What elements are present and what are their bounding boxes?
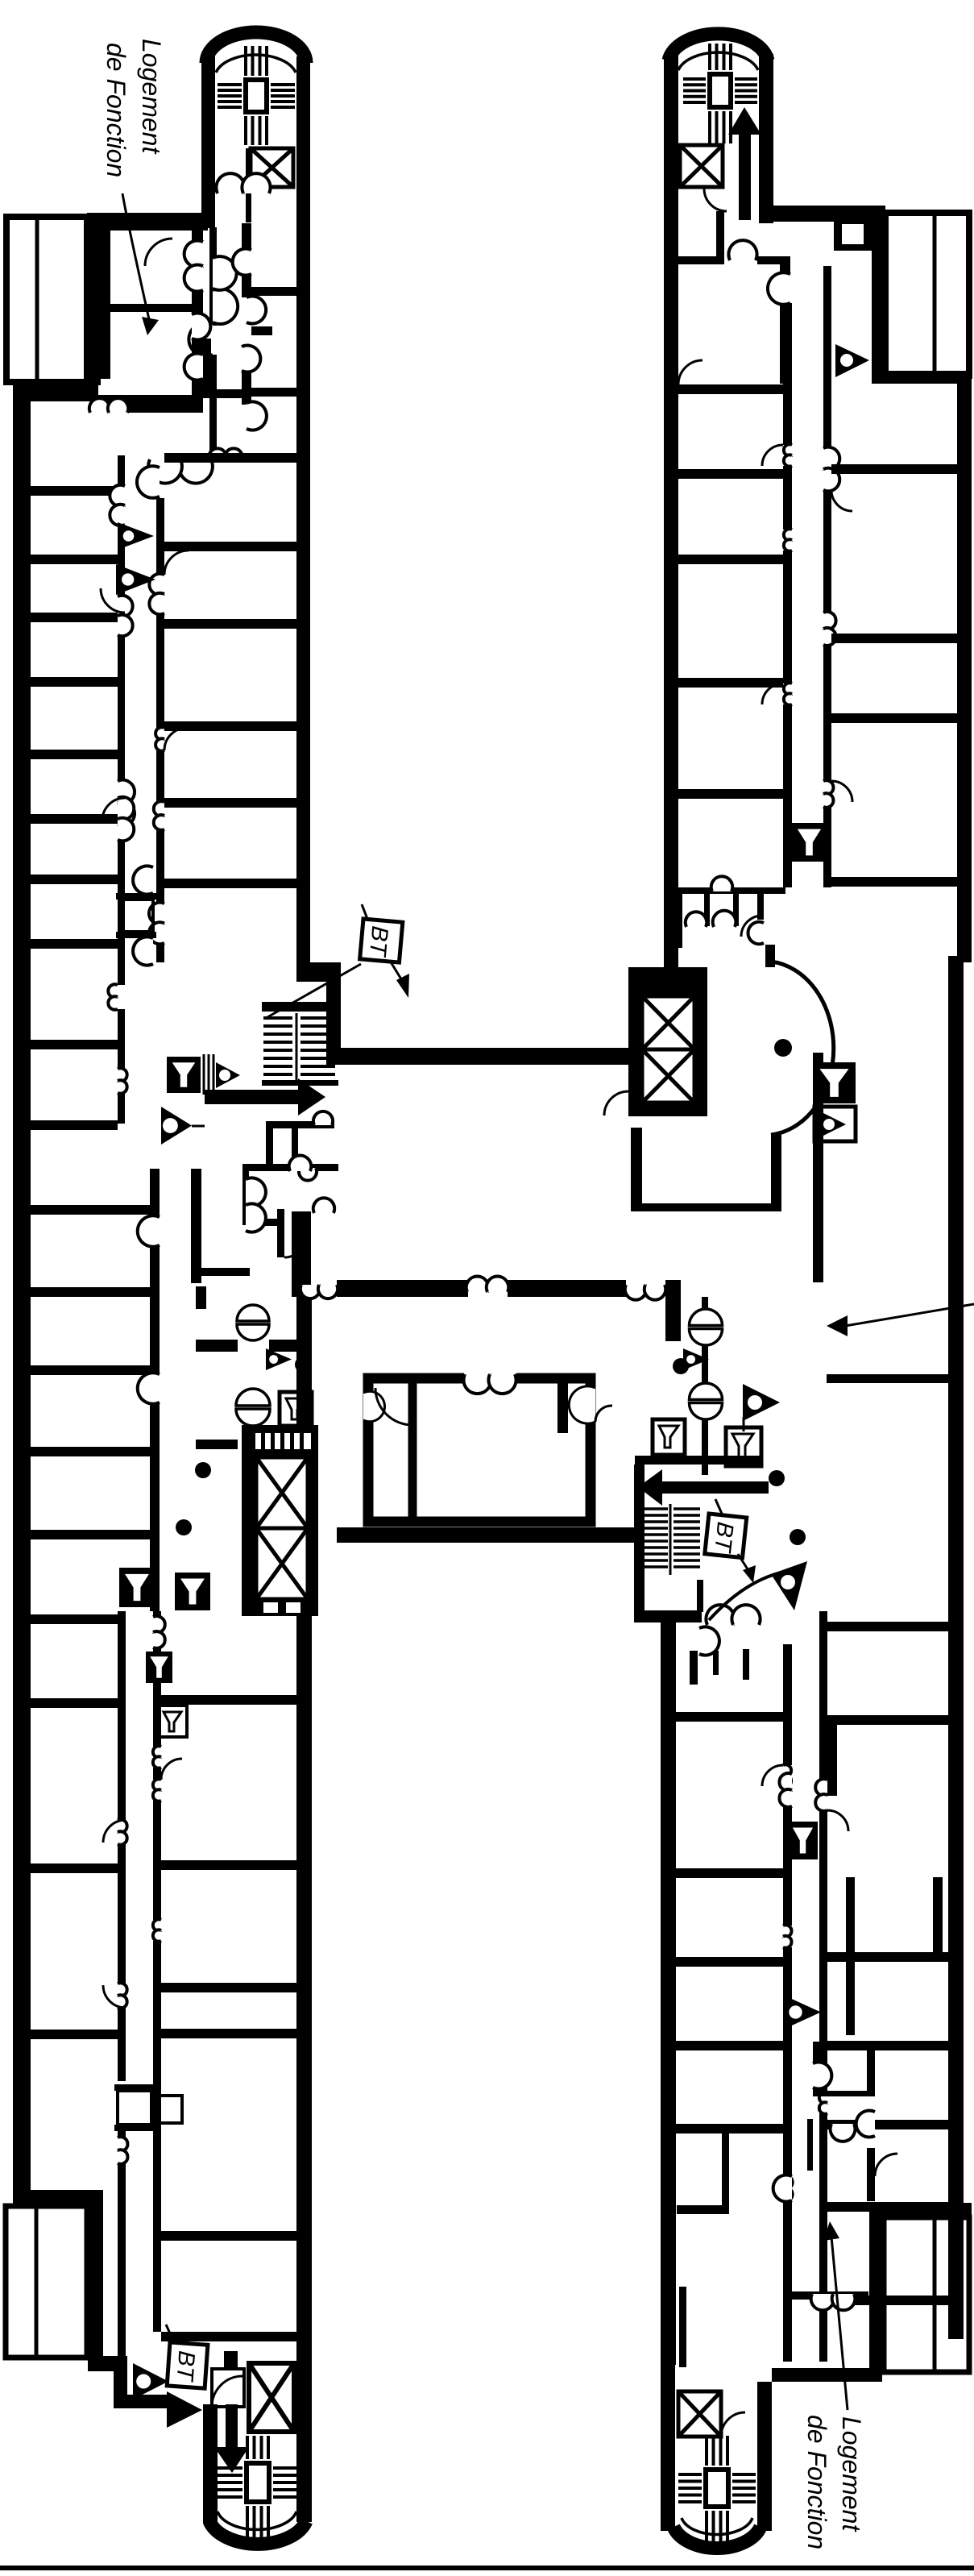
svg-text:de Fonction: de Fonction	[802, 2415, 831, 2549]
svg-text:BT: BT	[364, 924, 392, 958]
svg-text:de Fonction: de Fonction	[102, 43, 131, 177]
svg-text:Logement: Logement	[137, 39, 166, 154]
svg-text:Logement: Logement	[837, 2416, 866, 2532]
svg-text:BT: BT	[709, 1520, 738, 1554]
svg-text:BT: BT	[172, 2350, 200, 2383]
